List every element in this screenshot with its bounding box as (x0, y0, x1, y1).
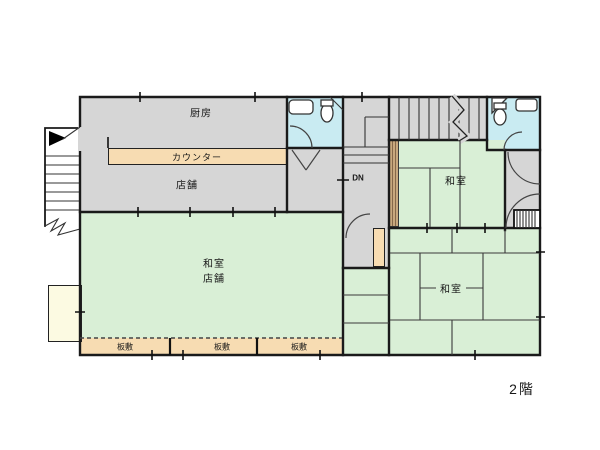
annex-box (48, 285, 82, 342)
label-washitsu-top-right: 和室 (445, 173, 467, 188)
label-floor: 2階 (509, 379, 535, 399)
label-washitsu-shop-line1: 和室 (203, 255, 225, 270)
label-kitchen: 厨房 (190, 105, 212, 120)
room-mid-column (343, 268, 389, 355)
label-washitsu-shop-line2: 店舗 (203, 270, 225, 285)
plank-edge-strip (389, 140, 399, 227)
label-itajiki-1: 板敷 (117, 342, 133, 353)
room-bathroom-middle (287, 97, 343, 148)
room-corridor-right (505, 150, 540, 230)
label-itajiki-2: 板敷 (214, 342, 230, 353)
label-stairs-down: DN (352, 174, 364, 183)
label-counter: カウンター (172, 151, 222, 164)
exterior-stairs-area (45, 128, 80, 228)
floor-plan: 厨房 カウンター 店舗 和室 和室 店舗 和室 板敷 板敷 板敷 DN 2階 (0, 0, 600, 450)
room-stair-run-top (389, 97, 487, 140)
room-washitsu-bottom-right (389, 228, 540, 355)
label-washitsu-bottom-right: 和室 (440, 281, 462, 296)
label-shop: 店舗 (176, 177, 198, 192)
hall-closet (373, 228, 385, 267)
label-itajiki-3: 板敷 (291, 342, 307, 353)
label-washitsu-shop: 和室 店舗 (203, 255, 225, 285)
